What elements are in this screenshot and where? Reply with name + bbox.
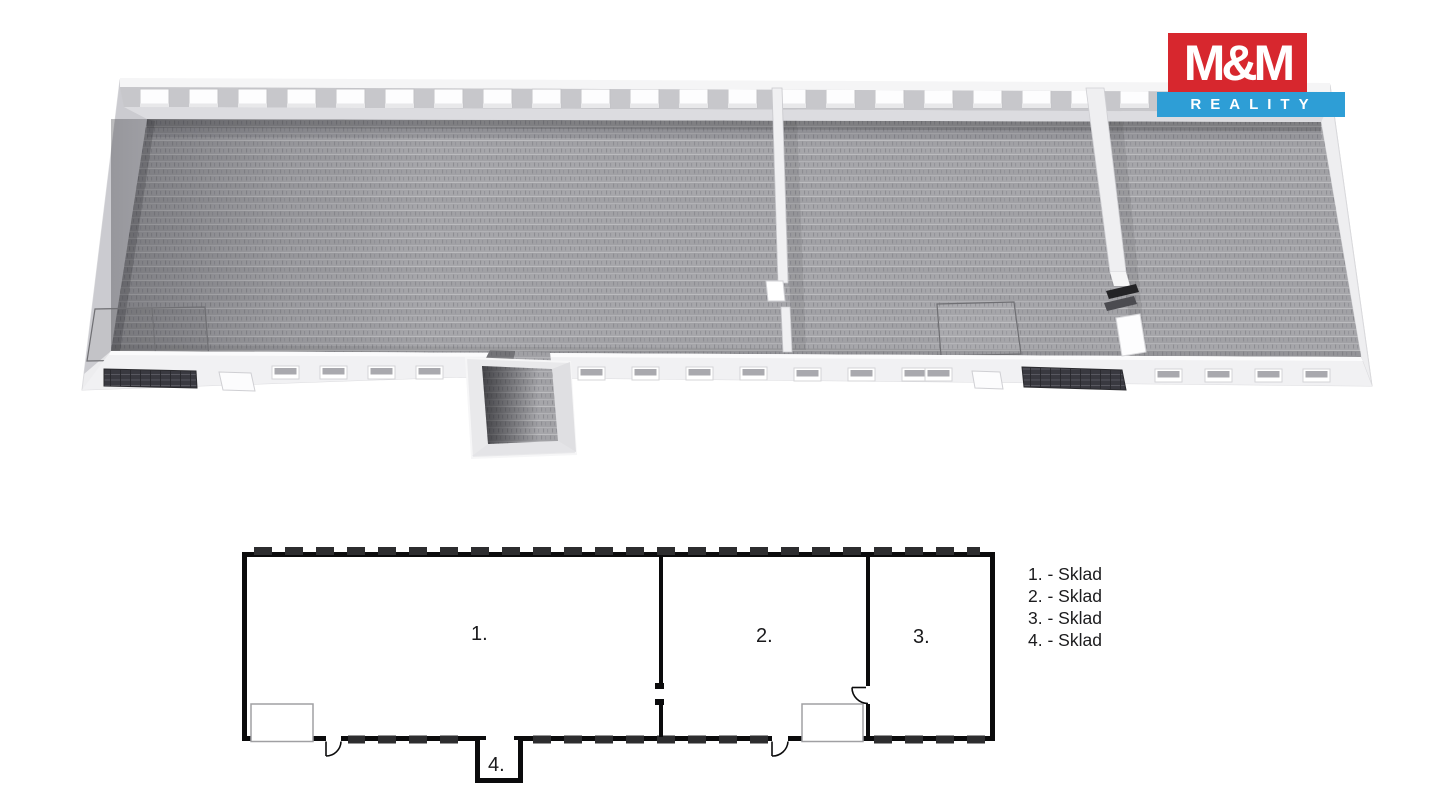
logo-subtitle: REALITY [1157,92,1345,117]
sectional-gate-left [104,369,197,388]
plan-ramp-room2 [802,704,863,742]
plan-windows-top [254,547,980,555]
floor-marking-room2 [937,302,1021,356]
sectional-gate-middle [1022,367,1126,390]
legend-item-4: 4. - Sklad [1028,629,1102,651]
room-label-1: 1. [471,624,488,644]
plan-door-room2 [772,742,788,757]
plan-windows-bottom [866,736,986,744]
plan-windows-bottom [530,736,768,744]
plan-2d [245,547,993,783]
plan-ramp-room1 [251,704,313,742]
entry-door-middle [972,371,1003,389]
room-label-3: 3. [913,627,930,647]
plan-outline [245,555,993,739]
plan-door-room1 [326,742,341,757]
plan-windows-bottom [348,736,470,744]
logo-title: M&M [1168,33,1307,92]
legend-item-3: 3. - Sklad [1028,607,1102,629]
floorplan-page: 1. 2. 3. 4. 1. - Sklad 2. - Sklad 3. - S… [0,0,1440,810]
top-wall [120,78,1330,122]
render-3d [82,78,1372,458]
room-label-2: 2. [756,626,773,646]
legend-item-1: 1. - Sklad [1028,563,1102,585]
room-label-4: 4. [488,755,505,775]
entry-door-left [219,372,255,391]
legend: 1. - Sklad 2. - Sklad 3. - Sklad 4. - Sk… [1028,563,1102,651]
floorplan-graphics [0,0,1440,810]
annex-room4 [466,358,576,458]
legend-item-2: 2. - Sklad [1028,585,1102,607]
